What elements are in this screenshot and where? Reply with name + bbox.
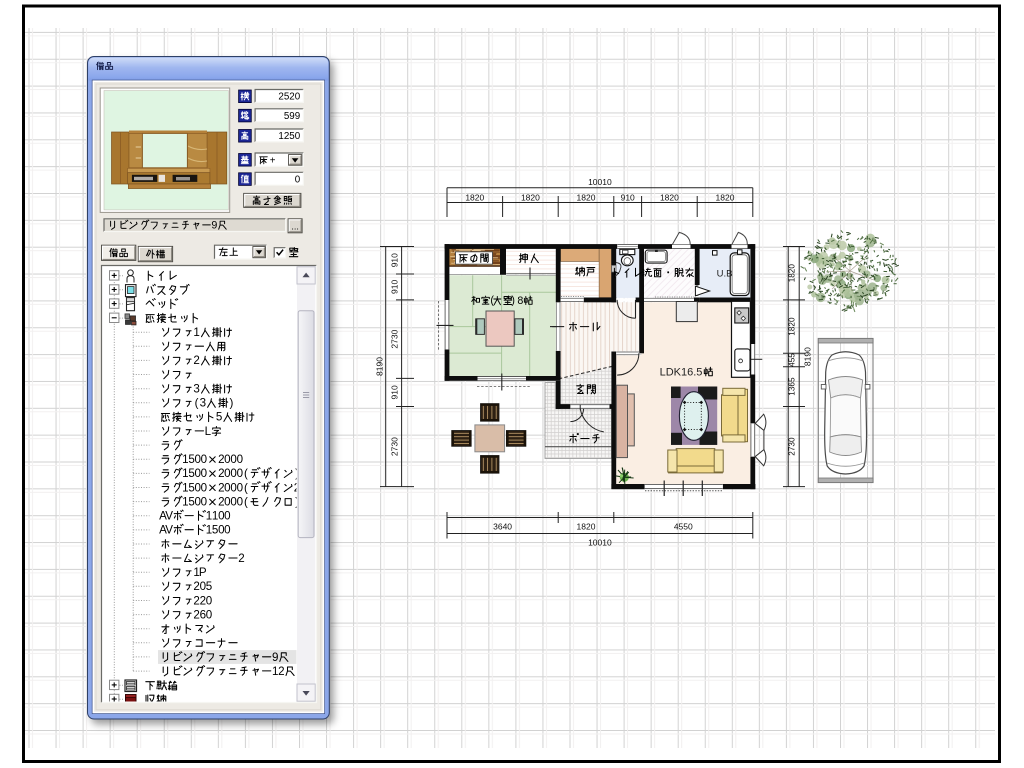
svg-text:10010: 10010	[588, 177, 612, 187]
svg-text:4550: 4550	[674, 522, 693, 532]
svg-text:599: 599	[284, 111, 300, 122]
svg-text:0: 0	[206, 594, 212, 607]
svg-text:(: (	[244, 495, 248, 508]
svg-text:0: 0	[237, 481, 243, 494]
svg-text:): )	[229, 397, 233, 410]
svg-text:LDK16.5: LDK16.5	[660, 366, 703, 378]
svg-text:0: 0	[201, 481, 207, 494]
svg-text:2520: 2520	[278, 92, 300, 103]
svg-text:1820: 1820	[660, 192, 679, 202]
svg-text:0: 0	[201, 495, 207, 508]
svg-text:V: V	[165, 524, 173, 537]
svg-text:5: 5	[216, 411, 222, 424]
svg-text:2730: 2730	[390, 437, 400, 456]
svg-text:0: 0	[201, 453, 207, 466]
svg-text:910: 910	[621, 192, 635, 202]
svg-text:0: 0	[237, 453, 243, 466]
svg-text:3: 3	[193, 383, 199, 396]
svg-text:1820: 1820	[716, 192, 735, 202]
svg-text:1820: 1820	[521, 192, 540, 202]
svg-text:2: 2	[278, 665, 284, 678]
svg-text:1820: 1820	[577, 192, 596, 202]
svg-text:...: ...	[291, 222, 299, 232]
svg-text:3640: 3640	[493, 522, 512, 532]
svg-text:8190: 8190	[375, 357, 385, 376]
svg-text:(: (	[195, 397, 199, 410]
svg-text:9: 9	[272, 651, 278, 664]
svg-text:0: 0	[237, 495, 243, 508]
svg-text:5: 5	[206, 580, 212, 593]
svg-text:1365: 1365	[788, 377, 797, 396]
svg-text:U.B: U.B	[717, 268, 733, 279]
svg-text:0: 0	[206, 608, 212, 621]
svg-text:910: 910	[390, 280, 400, 294]
svg-text:(: (	[244, 481, 248, 494]
svg-text:2: 2	[238, 552, 244, 565]
svg-text:P: P	[199, 566, 207, 579]
svg-text:1820: 1820	[788, 317, 797, 336]
svg-text:8190: 8190	[803, 347, 813, 366]
svg-text:910: 910	[390, 253, 400, 267]
svg-text:910: 910	[390, 385, 400, 399]
svg-text:3: 3	[200, 397, 206, 410]
svg-text:1820: 1820	[788, 264, 797, 283]
svg-text:8: 8	[517, 295, 523, 307]
svg-text:1820: 1820	[465, 192, 484, 202]
svg-text:2730: 2730	[390, 329, 400, 348]
svg-text:0: 0	[201, 467, 207, 480]
svg-text:1: 1	[193, 326, 199, 339]
svg-text:0: 0	[224, 524, 230, 537]
svg-text:2: 2	[193, 354, 199, 367]
svg-text:0: 0	[295, 174, 301, 185]
svg-text:9: 9	[211, 220, 217, 232]
svg-text:0: 0	[224, 510, 230, 523]
svg-text:455: 455	[788, 353, 797, 367]
svg-text:V: V	[165, 510, 173, 523]
svg-text:1820: 1820	[577, 522, 596, 532]
svg-text:+: +	[270, 155, 276, 166]
svg-text:(: (	[244, 467, 248, 480]
svg-text:2730: 2730	[788, 437, 797, 456]
svg-text:): )	[511, 294, 515, 306]
svg-text:L: L	[205, 425, 212, 438]
svg-text:0: 0	[237, 467, 243, 480]
svg-text:1250: 1250	[278, 131, 300, 142]
svg-text:10010: 10010	[588, 538, 612, 548]
